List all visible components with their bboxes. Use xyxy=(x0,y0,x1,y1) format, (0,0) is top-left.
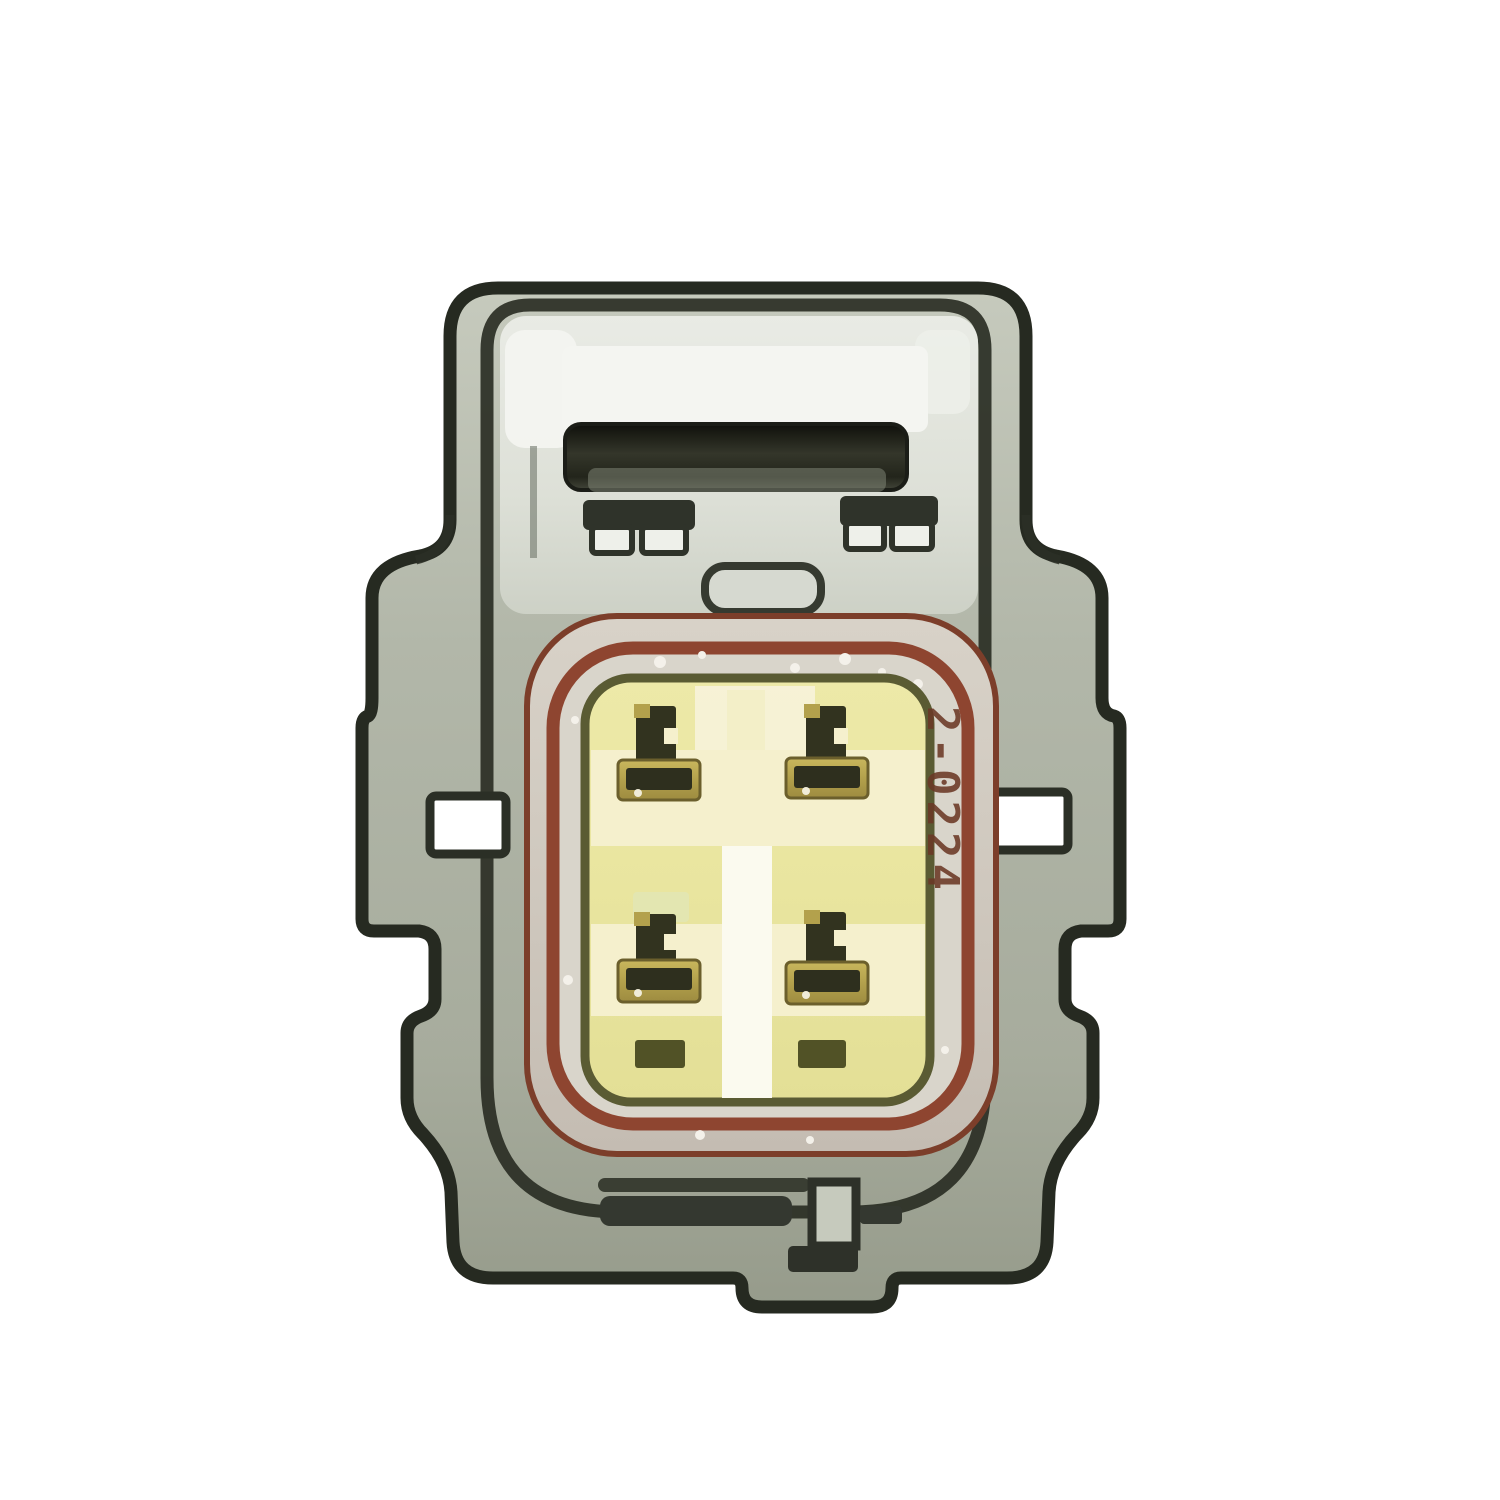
pin-notch xyxy=(834,930,848,946)
bottom-upper-line xyxy=(598,1178,810,1192)
pin-brass-edge xyxy=(804,910,820,924)
terminal-insert xyxy=(585,678,930,1102)
bottom-band-right xyxy=(860,1206,902,1224)
pin-notch xyxy=(834,728,848,744)
cavity-slot-left xyxy=(635,1040,685,1068)
latch-area xyxy=(500,316,978,614)
blade-contact-dark xyxy=(794,766,860,788)
blade-contact-dark xyxy=(794,970,860,992)
blade-dot xyxy=(634,789,642,797)
blade-contact-dark xyxy=(626,968,692,990)
pin-brass-edge xyxy=(634,704,650,718)
connector-photo-svg: 2-0224 xyxy=(0,0,1500,1500)
center-rib xyxy=(722,846,772,1098)
bottom-t-rib xyxy=(812,1182,856,1246)
latch-bar-sheen xyxy=(588,468,886,492)
pin-notch xyxy=(664,728,678,744)
blade-contact-dark xyxy=(626,768,692,790)
date-code-marking: 2-0224 xyxy=(917,706,968,895)
metal-clip-right xyxy=(840,496,938,549)
pin-brass-edge xyxy=(634,912,650,926)
latch-white-band xyxy=(562,346,928,432)
side-key-slot-left xyxy=(430,796,506,854)
latch-seam xyxy=(530,446,537,558)
pin-notch xyxy=(664,934,678,950)
latch-slot xyxy=(705,566,821,612)
blade-dot xyxy=(802,991,810,999)
cavity-slot-right xyxy=(798,1040,846,1068)
bottom-dark-band xyxy=(600,1196,792,1226)
side-key-slot-right xyxy=(988,792,1068,850)
bottom-notch xyxy=(788,1246,858,1272)
metal-clip-left xyxy=(583,500,695,553)
product-photo: 2-0224 xyxy=(0,0,1500,1500)
blade-dot xyxy=(634,989,642,997)
blade-dot xyxy=(802,787,810,795)
pin-brass-edge xyxy=(804,704,820,718)
center-rib-upper xyxy=(727,690,765,750)
